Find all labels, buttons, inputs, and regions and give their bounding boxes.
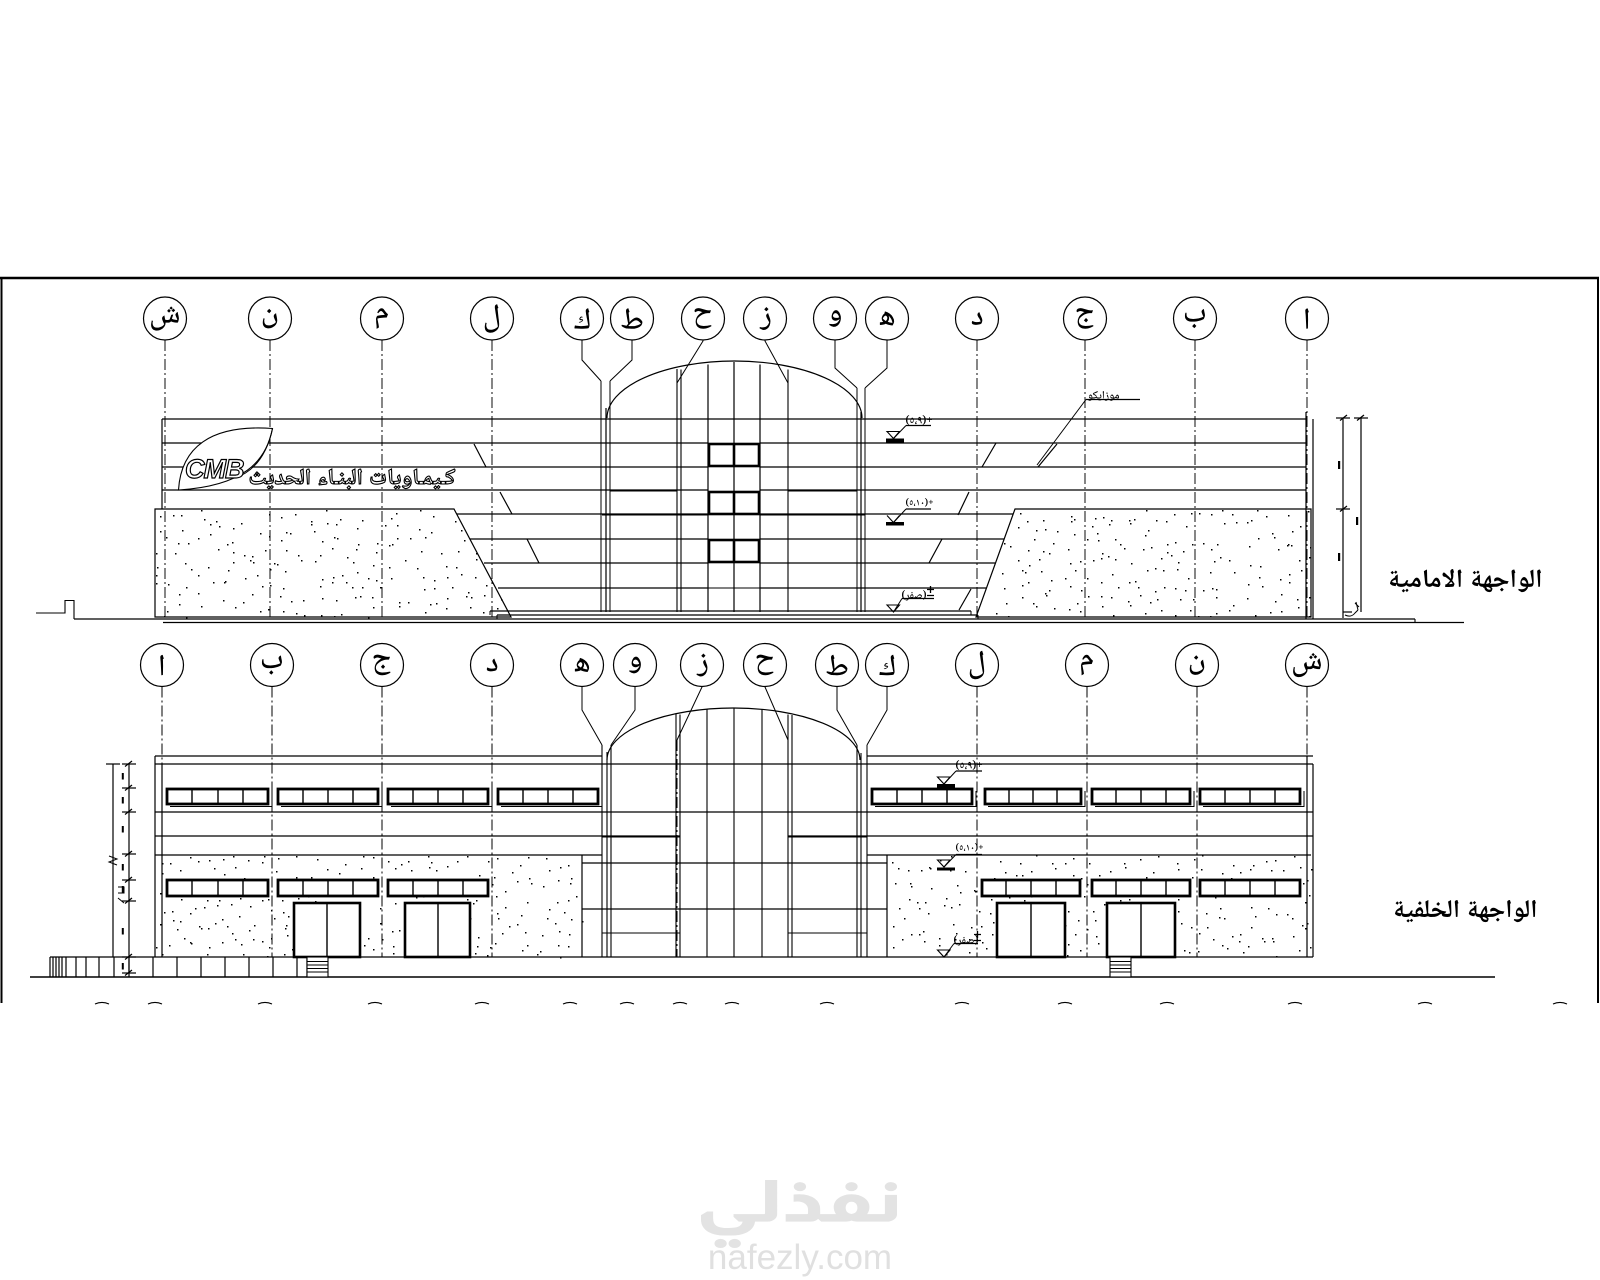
svg-text:nafezly.com: nafezly.com: [708, 1238, 892, 1277]
svg-text:CMB: CMB: [185, 454, 244, 484]
